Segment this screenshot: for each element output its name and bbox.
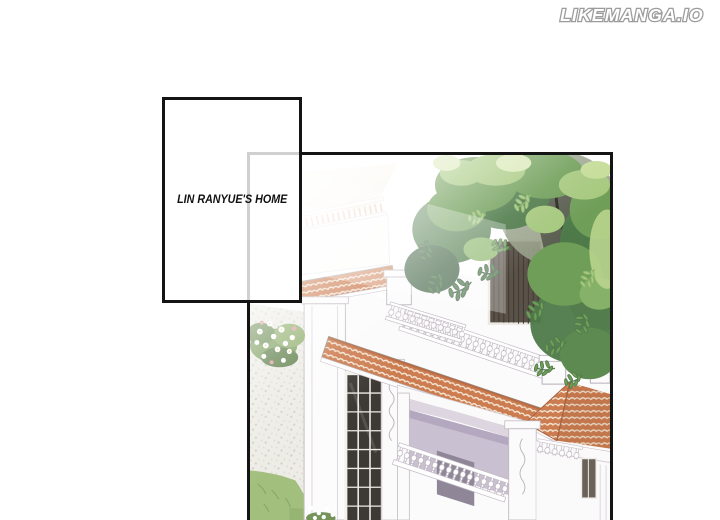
site-watermark: LIKEMANGA.IO — [544, 1, 714, 29]
white-fade-overlay — [250, 155, 610, 520]
caption-box: LIN RANYUE'S HOME — [162, 97, 302, 303]
caption-text: LIN RANYUE'S HOME — [177, 194, 287, 207]
site-watermark-svg: LIKEMANGA.IO — [544, 1, 714, 29]
site-watermark-text: LIKEMANGA.IO — [560, 5, 704, 25]
manga-page: { "watermark": { "text": "LIKEMANGA.IO" … — [0, 0, 720, 520]
panel-illustration — [250, 155, 610, 520]
